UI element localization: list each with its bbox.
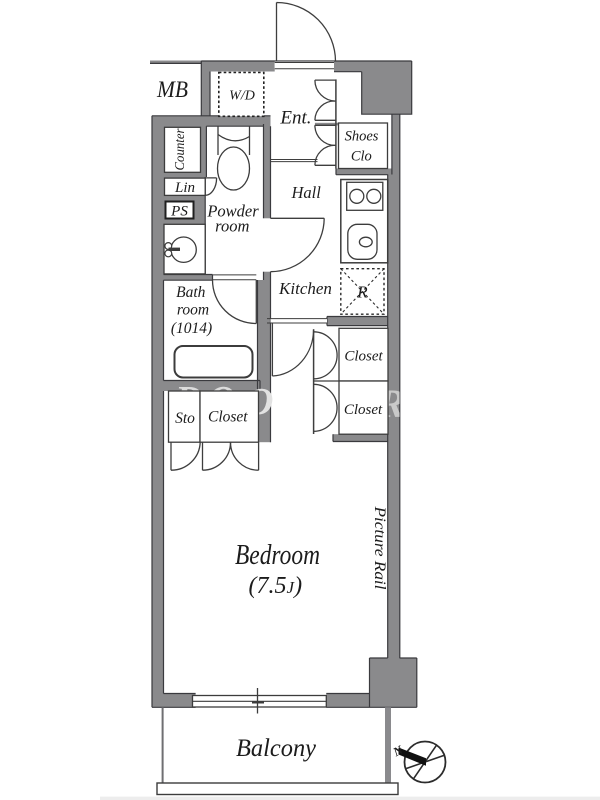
svg-text:Bedroom: Bedroom	[235, 539, 320, 571]
svg-text:Ent.: Ent.	[279, 108, 311, 129]
svg-text:R: R	[356, 283, 368, 302]
svg-text:Balcony: Balcony	[236, 735, 317, 762]
svg-text:room: room	[177, 302, 209, 319]
svg-text:(1014): (1014)	[171, 320, 212, 337]
svg-text:Kitchen: Kitchen	[278, 279, 332, 298]
svg-text:Shoes: Shoes	[345, 129, 379, 145]
svg-text:room: room	[215, 217, 249, 236]
svg-text:Picture Rail: Picture Rail	[371, 505, 388, 589]
svg-text:Lin: Lin	[174, 180, 195, 196]
svg-text:Hall: Hall	[291, 183, 322, 202]
svg-text:Closet: Closet	[344, 348, 383, 364]
svg-text:Closet: Closet	[208, 409, 248, 426]
svg-text:Counter: Counter	[173, 128, 188, 171]
svg-text:(7.5J): (7.5J)	[249, 573, 303, 599]
svg-text:PS: PS	[170, 204, 188, 220]
svg-text:Bath: Bath	[176, 284, 206, 301]
svg-text:Sto: Sto	[175, 410, 195, 427]
svg-text:MB: MB	[156, 77, 188, 102]
svg-text:Clo: Clo	[351, 149, 372, 165]
svg-text:W/D: W/D	[229, 89, 255, 104]
svg-text:Closet: Closet	[344, 402, 383, 418]
